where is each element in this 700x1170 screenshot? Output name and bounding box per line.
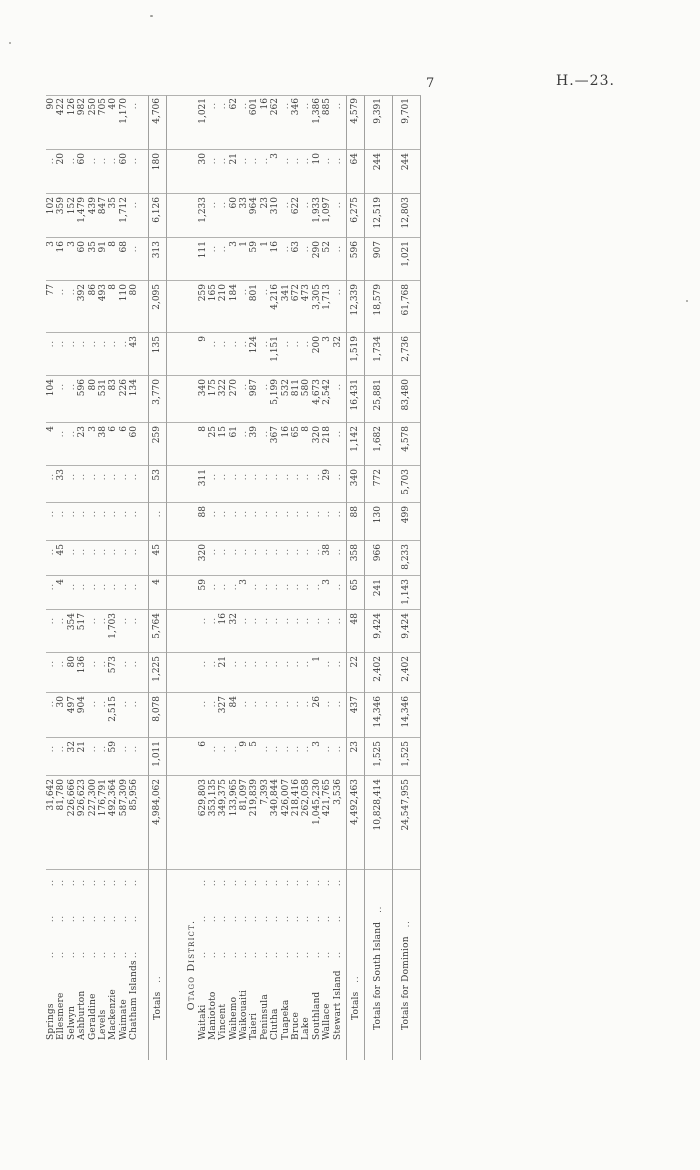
leader-dots: .. (153, 976, 162, 983)
table-cell: .. (229, 738, 239, 776)
scanned-document-page: { "page": { "number": "7", "doc_ref": "H… (0, 0, 700, 1170)
table-cell: .. (229, 333, 239, 376)
county-name: Chatham Islands (129, 960, 139, 1040)
table-cell: 210 (218, 281, 228, 333)
table-cell: 1,170 (119, 95, 129, 150)
table-cell: .. (98, 150, 108, 194)
table-cell: 904 (77, 693, 87, 738)
row-label: Waikouaiti...... (239, 870, 249, 1060)
table-cell: .. (301, 466, 311, 503)
table-cell: .. (260, 693, 270, 738)
table-cell: 6 (119, 423, 129, 466)
table-cell: .. (260, 281, 270, 333)
leader-dots: .. (218, 879, 228, 886)
table-cell: 86 (88, 281, 98, 333)
empty-cell (140, 423, 148, 466)
table-cell: .. (291, 333, 301, 376)
table-cell: 1,011 (149, 738, 166, 776)
table-cell: .. (239, 653, 249, 693)
table-cell: 6 (108, 423, 118, 466)
table-cell: 35 (108, 194, 118, 238)
empty-cell (167, 776, 185, 870)
table-cell: .. (281, 610, 291, 653)
empty-cell (167, 238, 185, 281)
leader-dots: .. (229, 879, 239, 886)
empty-cell (167, 653, 185, 693)
empty-cell (167, 693, 185, 738)
leader-dots: .. (88, 879, 98, 886)
row-label: Southland...... (312, 870, 322, 1060)
leader-dots: .. (77, 915, 87, 922)
county-name: Geraldine (88, 993, 98, 1040)
leader-dots: .. (249, 915, 259, 922)
leader-dots: .. (88, 915, 98, 922)
leader-dots: .. (129, 915, 139, 922)
table-cell: .. (56, 610, 66, 653)
table-cell: 60 (129, 423, 139, 466)
empty-cell (185, 576, 198, 610)
table-cell: .. (208, 503, 218, 541)
empty-cell (343, 466, 346, 503)
table-cell: .. (208, 693, 218, 738)
table-cell: .. (98, 576, 108, 610)
table-row: Chatham Islands......85,956.............… (129, 95, 139, 1060)
table-cell: 16 (260, 95, 270, 150)
table-cell: 4 (149, 576, 166, 610)
table-cell: 32 (333, 333, 343, 376)
table-cell: 10,828,414 (365, 776, 392, 870)
table-cell: .. (67, 503, 77, 541)
table-cell: 8 (108, 238, 118, 281)
row-label: Taieri...... (249, 870, 259, 1060)
table-cell: .. (239, 610, 249, 653)
table-cell: 885 (322, 95, 332, 150)
table-cell: 629,803 (198, 776, 208, 870)
table-cell: 16,431 (347, 376, 364, 423)
table-cell: .. (239, 376, 249, 423)
table-cell: 184 (229, 281, 239, 333)
row-label: Waihemo...... (229, 870, 239, 1060)
county-name: Mackenzie (108, 989, 118, 1040)
table-cell: .. (333, 95, 343, 150)
table-cell: .. (301, 738, 311, 776)
table-cell: 772 (365, 466, 392, 503)
table-cell: 9,424 (365, 610, 392, 653)
table-cell: .. (46, 653, 56, 693)
table-cell: 26 (312, 693, 322, 738)
table-cell: 422 (56, 95, 66, 150)
table-cell: 320 (312, 423, 322, 466)
table-row (343, 95, 346, 1060)
empty-cell (185, 376, 198, 423)
leader-dots: .. (218, 951, 228, 958)
table-cell: .. (260, 423, 270, 466)
table-row: Waihemo......133,965..84..32........6127… (229, 95, 239, 1060)
table-cell: 135 (149, 333, 166, 376)
table-cell: .. (260, 610, 270, 653)
table-cell: .. (333, 194, 343, 238)
leader-dots: .. (374, 906, 383, 913)
table-cell: .. (312, 610, 322, 653)
empty-cell (167, 738, 185, 776)
county-name: Bruce (291, 1012, 301, 1040)
table-cell: 907 (365, 238, 392, 281)
table-cell: 4 (46, 423, 56, 466)
leader-dots: .. (67, 879, 77, 886)
leader-dots: .. (239, 879, 249, 886)
empty-cell (185, 738, 198, 776)
table-cell: .. (270, 503, 280, 541)
table-cell: .. (77, 503, 87, 541)
table-cell: 83 (108, 376, 118, 423)
leader-dots: .. (129, 951, 139, 958)
table-cell: .. (281, 95, 291, 150)
table-cell: 259 (198, 281, 208, 333)
table-cell: 124 (249, 333, 259, 376)
table-cell: .. (249, 466, 259, 503)
table-cell: .. (129, 576, 139, 610)
table-cell: 3 (322, 333, 332, 376)
table-cell: 219,839 (249, 776, 259, 870)
leader-dots: .. (312, 915, 322, 922)
empty-cell (167, 541, 185, 576)
table-cell: 499 (393, 503, 420, 541)
table-top-margin (18, 95, 46, 1060)
table-cell: .. (239, 503, 249, 541)
empty-cell (185, 503, 198, 541)
table-cell: .. (218, 95, 228, 150)
table-cell: 90 (46, 95, 56, 150)
table-cell: .. (46, 693, 56, 738)
leader-dots: .. (46, 915, 56, 922)
table-cell: .. (108, 503, 118, 541)
table-cell: .. (46, 738, 56, 776)
table-cell: .. (229, 576, 239, 610)
leader-dots: .. (260, 951, 270, 958)
table-cell: 2,402 (365, 653, 392, 693)
table-cell: .. (281, 333, 291, 376)
table-cell: 290 (312, 238, 322, 281)
table-cell: .. (67, 576, 77, 610)
table-cell: .. (260, 738, 270, 776)
table-cell: 16 (56, 238, 66, 281)
table-cell: 83,480 (393, 376, 420, 423)
table-cell: 200 (312, 333, 322, 376)
table-cell: .. (312, 466, 322, 503)
table-cell: 16 (218, 610, 228, 653)
leader-dots: .. (351, 976, 360, 983)
empty-cell (343, 541, 346, 576)
table-cell: 10 (312, 150, 322, 194)
table-cell: .. (291, 653, 301, 693)
table-row: Tuapeka......426,007................1653… (281, 95, 291, 1060)
empty-cell (185, 610, 198, 653)
table-cell: 262,058 (301, 776, 311, 870)
table-cell: .. (56, 333, 66, 376)
table-cell: .. (270, 693, 280, 738)
table-cell: .. (291, 610, 301, 653)
table-cell: 259 (149, 423, 166, 466)
empty-cell (167, 333, 185, 376)
table-cell: .. (281, 541, 291, 576)
row-label: Chatham Islands...... (129, 870, 139, 1060)
table-cell: .. (260, 150, 270, 194)
leader-dots: .. (56, 879, 66, 886)
table-cell: 497 (67, 693, 77, 738)
table-cell: 8 (301, 423, 311, 466)
table-cell: 61,768 (393, 281, 420, 333)
table-cell: 1,097 (322, 194, 332, 238)
table-cell: 218 (322, 423, 332, 466)
table-cell: 5 (249, 738, 259, 776)
table-cell: .. (98, 610, 108, 653)
leader-dots: .. (88, 951, 98, 958)
table-cell: 421,765 (322, 776, 332, 870)
leader-dots: .. (312, 879, 322, 886)
table-cell: .. (270, 541, 280, 576)
table-cell: 80 (67, 653, 77, 693)
empty-cell (185, 194, 198, 238)
table-cell: .. (67, 541, 77, 576)
table-cell: 40 (108, 95, 118, 150)
leader-dots: .. (77, 951, 87, 958)
totals-label: Totals for South Island (373, 922, 383, 1030)
table-cell: 3 (312, 738, 322, 776)
table-cell: .. (119, 333, 129, 376)
table-cell: 1,021 (198, 95, 208, 150)
table-cell: 165 (208, 281, 218, 333)
leader-dots: .. (281, 879, 291, 886)
table-cell: .. (108, 150, 118, 194)
table-cell: 65 (347, 576, 364, 610)
table-cell: 133,965 (229, 776, 239, 870)
empty-cell (185, 653, 198, 693)
county-name: Vincent (218, 1004, 228, 1040)
table-cell: .. (198, 610, 208, 653)
table-cell: 48 (347, 610, 364, 653)
county-name: Tuapeka (281, 1000, 291, 1040)
table-cell: 310 (270, 194, 280, 238)
table-row: Totals for Dominion..24,547,9551,52514,3… (393, 95, 421, 1060)
empty-cell (140, 333, 148, 376)
table-cell: .. (208, 238, 218, 281)
table-cell: .. (129, 541, 139, 576)
table-cell: 573 (108, 653, 118, 693)
table-cell: 53 (149, 466, 166, 503)
table-cell: 437 (347, 693, 364, 738)
table-row: Ashburton......926,62321904136517.......… (77, 95, 87, 1060)
table-cell: 966 (365, 541, 392, 576)
table-cell: 63 (291, 238, 301, 281)
empty-cell (185, 281, 198, 333)
table-cell: .. (88, 466, 98, 503)
leader-dots: .. (249, 951, 259, 958)
empty-cell (343, 194, 346, 238)
table-cell: 9 (239, 738, 249, 776)
table-cell: .. (281, 576, 291, 610)
row-label: Totals for Dominion.. (393, 870, 420, 1060)
table-cell: .. (208, 738, 218, 776)
table-cell: .. (108, 466, 118, 503)
totals-label: Totals (153, 992, 163, 1020)
table-cell: .. (291, 693, 301, 738)
table-cell: 322 (218, 376, 228, 423)
table-cell: 1,703 (108, 610, 118, 653)
table-cell: 987 (249, 376, 259, 423)
table-cell: .. (333, 541, 343, 576)
table-cell: .. (301, 541, 311, 576)
rotated-table-container: Springs......31,642................4104.… (18, 95, 488, 1065)
row-label: Waimate...... (119, 870, 129, 1060)
table-cell: .. (333, 576, 343, 610)
table-cell: 1,525 (365, 738, 392, 776)
table-cell: 1,519 (347, 333, 364, 376)
table-cell: .. (56, 503, 66, 541)
table-cell: 4 (56, 576, 66, 610)
table-row: Otago District. (185, 95, 198, 1060)
table-cell: .. (88, 503, 98, 541)
table-cell: .. (129, 653, 139, 693)
table-cell: 517 (77, 610, 87, 653)
table-cell: 176,791 (98, 776, 108, 870)
table-row (140, 95, 148, 1060)
table-cell: 85,956 (129, 776, 139, 870)
table-cell: .. (88, 653, 98, 693)
table-cell: 3 (88, 423, 98, 466)
table-cell: 270 (229, 376, 239, 423)
table-cell: 340,844 (270, 776, 280, 870)
table-cell: .. (88, 610, 98, 653)
table-cell: .. (333, 610, 343, 653)
row-label (343, 870, 346, 1060)
table-cell: .. (322, 693, 332, 738)
table-cell: 4,673 (312, 376, 322, 423)
table-cell: 84 (229, 693, 239, 738)
county-name: Southland (312, 992, 322, 1040)
table-cell: .. (56, 281, 66, 333)
table-cell: 1,233 (198, 194, 208, 238)
county-name: Lake (301, 1017, 311, 1040)
totals-label: Totals (351, 992, 361, 1020)
table-cell: 354 (67, 610, 77, 653)
table-row: Maniototo......353,135................25… (208, 95, 218, 1060)
county-name: Levels (98, 1010, 108, 1040)
table-cell: 426,007 (281, 776, 291, 870)
empty-cell (167, 423, 185, 466)
leader-dots: .. (208, 879, 218, 886)
table-cell: 91 (98, 238, 108, 281)
table-cell: 1,713 (322, 281, 332, 333)
table-cell: .. (67, 333, 77, 376)
table-cell: 349,375 (218, 776, 228, 870)
table-cell: 811 (291, 376, 301, 423)
empty-cell (343, 95, 346, 150)
document-reference: H.—23. (556, 73, 615, 89)
table-cell: 587,309 (119, 776, 129, 870)
table-cell: .. (56, 423, 66, 466)
table-cell: .. (270, 738, 280, 776)
leader-dots: .. (239, 951, 249, 958)
table-cell: .. (119, 466, 129, 503)
empty-cell (167, 150, 185, 194)
table-cell: 5,199 (270, 376, 280, 423)
leader-dots: .. (67, 951, 77, 958)
table-cell: .. (67, 466, 77, 503)
table-cell: .. (239, 693, 249, 738)
leader-dots: .. (198, 951, 208, 958)
table-cell: 81,097 (239, 776, 249, 870)
table-cell: .. (218, 238, 228, 281)
table-cell: .. (333, 693, 343, 738)
leader-dots: .. (208, 951, 218, 958)
table-cell: 5,764 (149, 610, 166, 653)
table-cell: .. (229, 653, 239, 693)
leader-dots: .. (322, 915, 332, 922)
table-cell: .. (249, 150, 259, 194)
table-cell: .. (108, 333, 118, 376)
row-label: Wallace...... (322, 870, 332, 1060)
table-cell: 226 (119, 376, 129, 423)
table-cell: 705 (98, 95, 108, 150)
table-cell: .. (98, 738, 108, 776)
table-row: Southland......1,045,2303261..........32… (312, 95, 322, 1060)
table-cell: 45 (149, 541, 166, 576)
table-cell: 847 (98, 194, 108, 238)
table-cell: 180 (149, 150, 166, 194)
table-cell: 367 (270, 423, 280, 466)
table-cell: .. (98, 333, 108, 376)
table-cell: 60 (229, 194, 239, 238)
table-cell: 39 (249, 423, 259, 466)
empty-cell (185, 150, 198, 194)
table-cell: .. (249, 541, 259, 576)
table-cell: .. (333, 238, 343, 281)
row-label: Selwyn...... (67, 870, 77, 1060)
empty-cell (140, 281, 148, 333)
table-cell: 4,706 (149, 95, 166, 150)
table-cell: 1,682 (365, 423, 392, 466)
table-cell: 60 (77, 150, 87, 194)
table-cell: 130 (365, 503, 392, 541)
table-cell: .. (291, 466, 301, 503)
table-cell: .. (218, 738, 228, 776)
table-cell: .. (270, 466, 280, 503)
leader-dots: .. (229, 915, 239, 922)
table-cell: 88 (347, 503, 364, 541)
table-cell: .. (322, 653, 332, 693)
county-name: Selwyn (67, 1006, 77, 1040)
county-name: Peninsula (260, 994, 270, 1040)
table-cell: 8 (108, 281, 118, 333)
empty-cell (185, 423, 198, 466)
table-cell: 4,578 (393, 423, 420, 466)
table-cell: .. (270, 653, 280, 693)
table-cell: .. (129, 466, 139, 503)
table-cell: 2,736 (393, 333, 420, 376)
table-cell: .. (208, 466, 218, 503)
table-cell: .. (239, 423, 249, 466)
table-cell: .. (239, 333, 249, 376)
county-name: Waihemo (229, 997, 239, 1040)
table-cell: .. (312, 576, 322, 610)
table-cell: .. (301, 503, 311, 541)
table-cell: 68 (119, 238, 129, 281)
empty-cell (185, 238, 198, 281)
table-row: Clutha......340,844................3675,… (270, 95, 280, 1060)
table-cell: 80 (129, 281, 139, 333)
totals-label: Totals for Dominion (401, 936, 411, 1030)
leader-dots: .. (333, 915, 343, 922)
